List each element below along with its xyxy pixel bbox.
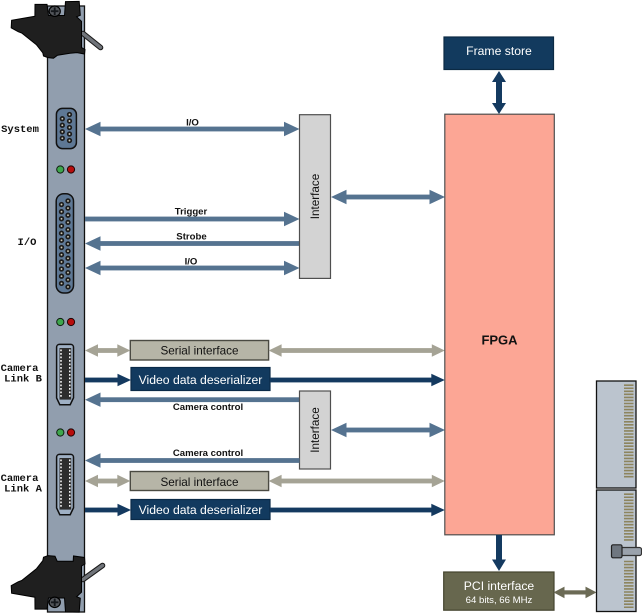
svg-text:Serial interface: Serial interface [161,345,239,358]
svg-text:64 bits, 66 MHz: 64 bits, 66 MHz [466,595,533,606]
svg-text:Link A: Link A [4,484,43,496]
svg-text:I/O: I/O [18,237,37,249]
svg-text:Camera control: Camera control [173,402,243,413]
svg-text:Trigger: Trigger [175,207,208,218]
svg-text:Interface: Interface [309,174,322,219]
svg-text:PCI interface: PCI interface [464,579,535,593]
svg-text:Link B: Link B [4,374,43,386]
svg-text:Video data deserializer: Video data deserializer [139,373,263,387]
svg-text:System: System [1,124,39,136]
svg-text:Serial interface: Serial interface [161,476,239,489]
svg-text:Interface: Interface [309,407,322,452]
svg-text:I/O: I/O [186,118,199,129]
svg-text:Strobe: Strobe [176,232,206,243]
svg-text:I/O: I/O [185,257,198,268]
svg-text:FPGA: FPGA [481,332,518,347]
svg-text:Camera control: Camera control [173,448,243,459]
svg-text:Frame store: Frame store [466,44,532,58]
svg-text:Video data deserializer: Video data deserializer [139,503,263,517]
